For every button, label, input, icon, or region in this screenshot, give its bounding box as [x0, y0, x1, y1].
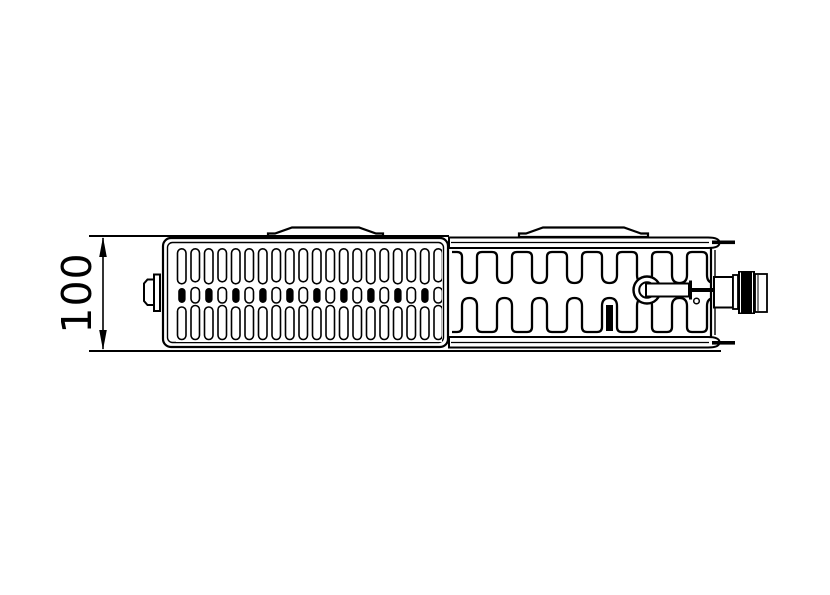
bottom-rail-pin — [712, 341, 735, 345]
drawing-canvas: 100 — [0, 0, 830, 595]
threaded-end — [755, 274, 767, 312]
radiator-technical-drawing: 100 — [0, 0, 830, 595]
dimension-label: 100 — [53, 252, 101, 333]
vent-screw — [694, 298, 700, 304]
connection-fitting — [714, 271, 767, 314]
grille-panel — [163, 238, 448, 347]
dimension-annotation: 100 — [53, 237, 107, 350]
bottom-rail — [449, 337, 735, 348]
fitting-collar — [733, 275, 738, 309]
grille-slots — [176, 248, 442, 342]
top-rail-pin — [712, 241, 735, 245]
plug-cap — [144, 280, 154, 306]
mounting-tab-right — [519, 228, 648, 238]
air-vent-plug — [144, 275, 160, 312]
fitting-neck — [714, 277, 733, 308]
top-rail — [449, 238, 735, 249]
valve-stem — [646, 284, 689, 297]
weld-mark — [606, 305, 613, 331]
